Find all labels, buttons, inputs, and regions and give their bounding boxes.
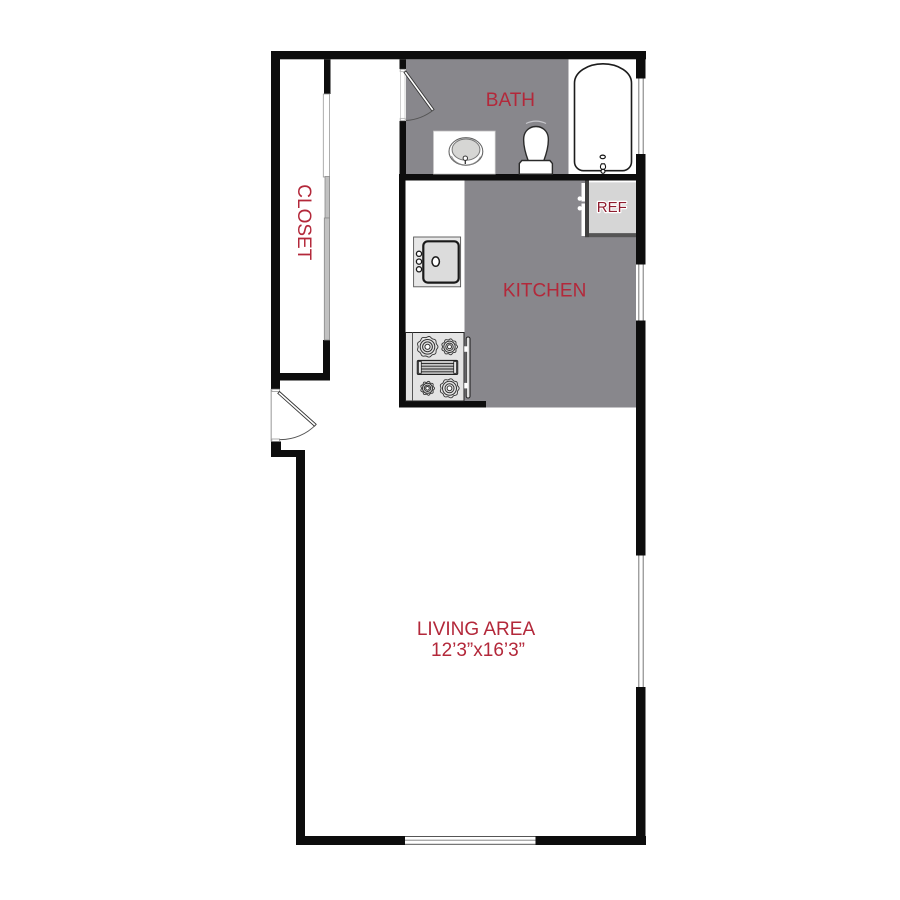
svg-text:BATH: BATH: [486, 90, 535, 111]
svg-text:CLOSET: CLOSET: [293, 184, 314, 260]
svg-text:KITCHEN: KITCHEN: [503, 281, 586, 302]
svg-text:12’3”x16’3”: 12’3”x16’3”: [431, 640, 525, 661]
svg-text:REF: REF: [597, 199, 627, 216]
svg-text:LIVING AREA: LIVING AREA: [417, 619, 536, 640]
